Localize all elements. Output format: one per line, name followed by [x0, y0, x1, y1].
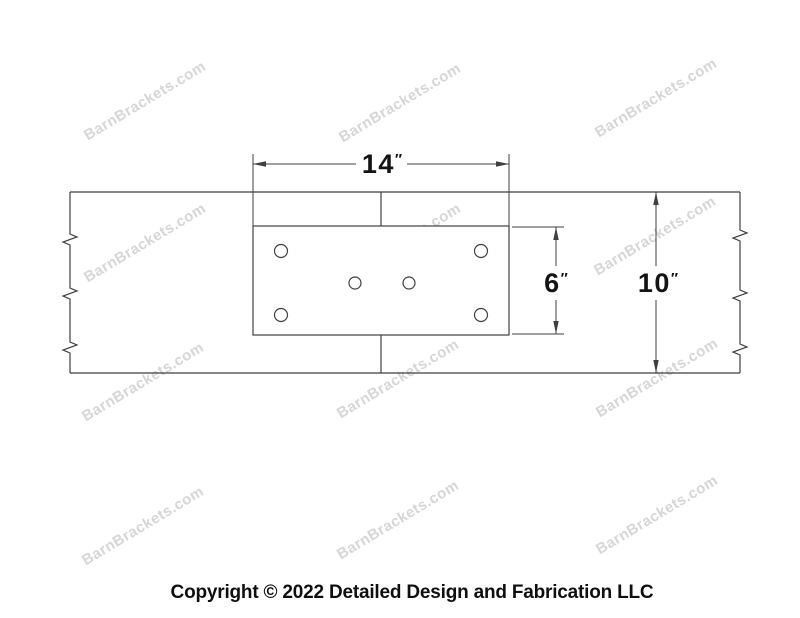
bolt-hole: [403, 277, 415, 289]
arrowhead-right-icon: [496, 161, 509, 166]
bolt-hole: [475, 309, 488, 322]
arrowhead-down-icon: [553, 321, 558, 334]
arrowhead-up-icon: [553, 227, 558, 240]
arrowhead-down-icon: [653, 360, 658, 373]
beam-right-break-edge: [733, 192, 747, 373]
bracket-drawing: 14″ 6″ 10″: [0, 0, 800, 618]
inch-mark-icon: ″: [561, 270, 568, 287]
bracket-plate: [253, 226, 509, 335]
bolt-hole: [275, 245, 288, 258]
dim-label-plate-width: 14″: [362, 149, 402, 179]
bolt-hole: [275, 309, 288, 322]
bolt-hole: [475, 245, 488, 258]
dim-label-plate-height: 6″: [544, 268, 568, 298]
drawing-page: BarnBrackets.com BarnBrackets.com BarnBr…: [0, 0, 800, 618]
inch-mark-icon: ″: [671, 270, 678, 287]
arrowhead-left-icon: [253, 161, 266, 166]
bolt-hole: [349, 277, 361, 289]
drawing-geometry: [63, 154, 747, 373]
dim-label-beam-height: 10″: [638, 268, 678, 298]
dim-value: 6: [544, 268, 561, 298]
inch-mark-icon: ″: [395, 151, 402, 168]
arrowhead-up-icon: [653, 192, 658, 205]
dim-value: 14: [362, 149, 395, 179]
beam-left-break-edge: [63, 192, 77, 373]
dim-value: 10: [638, 268, 671, 298]
copyright-text: Copyright © 2022 Detailed Design and Fab…: [0, 582, 800, 604]
